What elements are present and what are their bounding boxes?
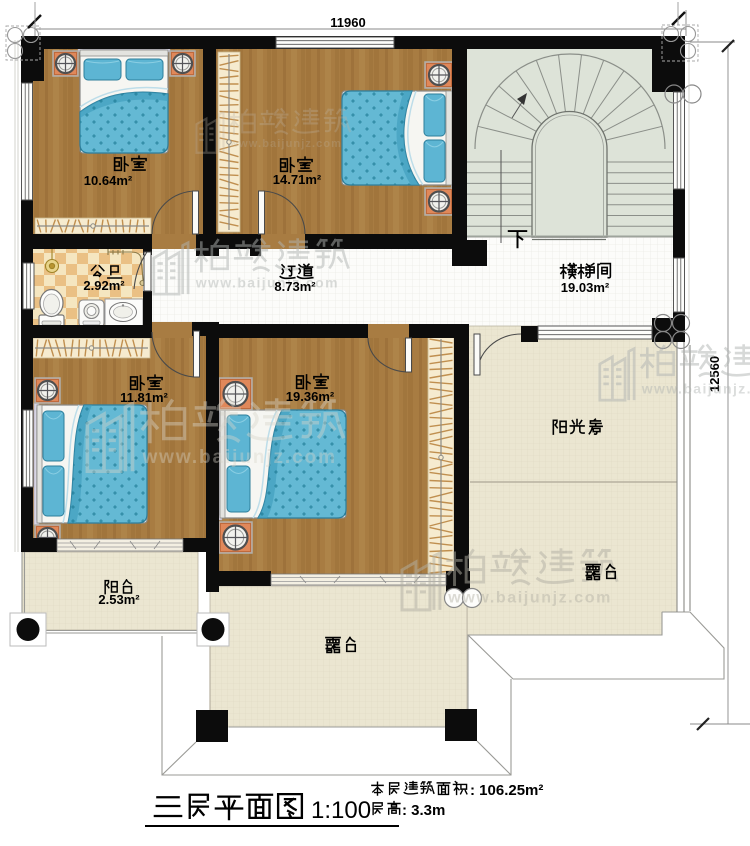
svg-text:10.64m²: 10.64m² xyxy=(84,173,133,188)
svg-text:14.71m²: 14.71m² xyxy=(273,172,322,187)
svg-text:: 106.25m²: : 106.25m² xyxy=(470,782,543,799)
svg-text:www.baijunjz.com: www.baijunjz.com xyxy=(229,138,343,150)
svg-text:19.03m²: 19.03m² xyxy=(561,280,610,295)
svg-text:www.baijunjz.com: www.baijunjz.com xyxy=(447,590,612,607)
svg-text:2.53m²: 2.53m² xyxy=(98,592,140,607)
svg-text:www.baijunjz.com: www.baijunjz.com xyxy=(142,447,337,468)
svg-text:www.baijunjz.com: www.baijunjz.com xyxy=(641,380,750,396)
svg-text:11.81m²: 11.81m² xyxy=(120,390,168,405)
svg-text:1:100: 1:100 xyxy=(311,797,371,824)
svg-text:11960: 11960 xyxy=(330,15,365,30)
svg-text:19.36m²: 19.36m² xyxy=(286,389,335,404)
svg-text:8.73m²: 8.73m² xyxy=(274,279,316,294)
svg-text:www.baijunjz.com: www.baijunjz.com xyxy=(195,274,339,290)
svg-text:2.92m²: 2.92m² xyxy=(83,278,125,293)
svg-text:: 3.3m: : 3.3m xyxy=(402,802,445,819)
